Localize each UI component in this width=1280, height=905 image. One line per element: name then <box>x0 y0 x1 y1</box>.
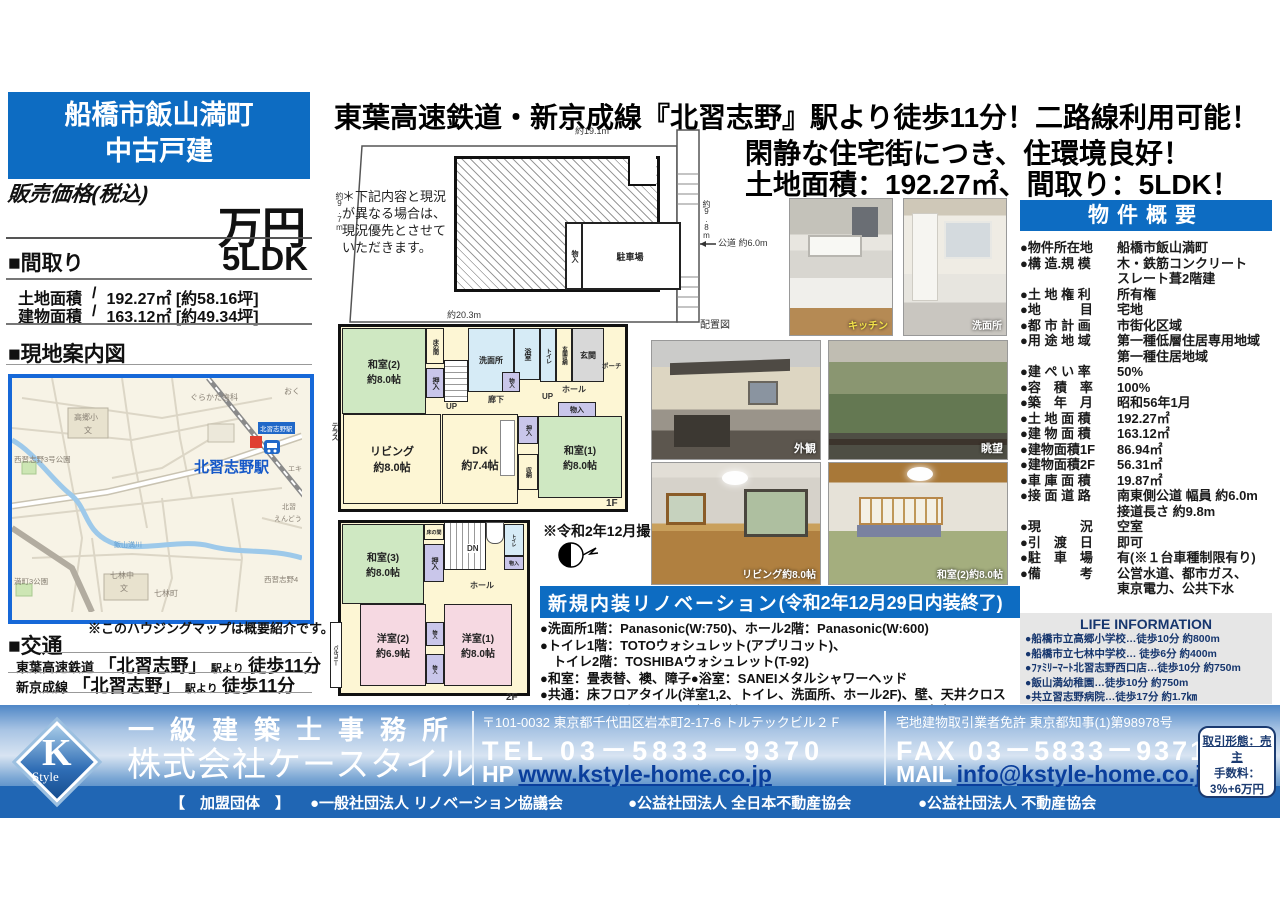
photo-exterior: 外観 <box>651 340 821 460</box>
closet-shuno: 収納 <box>518 454 538 490</box>
mail-row: MAIL info@kstyle-home.co.jp <box>896 761 1216 788</box>
room-washitsu1: 和室(1)約8.0帖 <box>538 416 622 498</box>
map-label: 西習志野4 <box>264 574 298 585</box>
kitchen-counter <box>500 420 515 476</box>
renovation-item: トイレ2階：TOSHIBAウォシュレット(T-92) <box>540 654 1018 671</box>
overview-row: ●容 積 率100% <box>1020 380 1274 396</box>
divider <box>6 364 312 365</box>
mirror-shape <box>944 221 992 259</box>
footer-band: K Style 一級建築士事務所 株式会社ケースタイル 【 加盟団体 】 ●一般… <box>0 705 1280 818</box>
logo-style-text: Style <box>32 769 59 785</box>
photo-view: 眺望 <box>828 340 1008 460</box>
closet-monoire: 物入 <box>502 372 520 392</box>
map-disclaimer: ※このハウジングマップは概要紹介です。 <box>88 618 334 637</box>
closet-monoire: 物入 <box>426 622 444 646</box>
overview-row: ●物件所在地船橋市飯山満町 <box>1020 240 1274 256</box>
walk-time: 徒歩11分 <box>222 676 295 696</box>
dim-top: 約19.1m <box>575 124 609 137</box>
porch-label: ポーチ <box>602 360 622 370</box>
room-washitsu2: 和室(2)約8.0帖 <box>342 328 426 414</box>
hall-2f-label: ホール <box>470 580 494 591</box>
overview-row: ●土 地 面 積192.27㎡ <box>1020 411 1274 427</box>
closet-monoire: 物入 <box>558 402 596 417</box>
renovation-item: ●洗面所1階：Panasonic(W:750)、ホール2階：Panasonic(… <box>540 621 1018 638</box>
member-org-label: 【 加盟団体 】 <box>170 792 290 813</box>
up-label: UP <box>542 392 553 401</box>
photo-label: リビング約8.0帖 <box>742 566 816 581</box>
life-information-title: LIFE INFORMATION <box>1020 616 1272 632</box>
divider <box>6 323 312 325</box>
hall-label: ホール <box>562 384 586 395</box>
map-label: 文 <box>84 425 92 436</box>
deal-type: 取引形態：売主 <box>1200 734 1274 766</box>
mail-link[interactable]: info@kstyle-home.co.jp <box>957 761 1216 787</box>
window-shape <box>748 381 778 405</box>
map-station-tag: 北習志野駅 <box>258 422 295 434</box>
fee-label: 手数料： <box>1200 766 1274 782</box>
property-title-box: 船橋市飯山満町 中古戸建 <box>8 92 310 179</box>
member-org: ●公益社団法人 全日本不動産協会 <box>628 792 851 813</box>
dn-label: DN <box>466 544 480 553</box>
photo-label: 洗面所 <box>972 317 1002 332</box>
overview-row: ●土 地 権 利所有権 <box>1020 287 1274 303</box>
divider <box>40 692 312 693</box>
map-label: 七林中 <box>110 570 134 581</box>
storage-strip: 物入 <box>565 222 583 290</box>
room-living: リビング約8.0帖 <box>343 414 441 504</box>
station-name: 「北習志野」 <box>72 676 180 696</box>
shoji-shape <box>859 497 943 525</box>
access-row: 新京成線 「北習志野」 駅より 徒歩11分 <box>16 672 310 698</box>
member-org: ●公益社団法人 不動産協会 <box>918 792 1096 813</box>
map-label: 高郷小 <box>74 412 98 423</box>
dim-right: 約9.8m <box>701 200 712 239</box>
overview-row: ●地 目宅地 <box>1020 302 1274 318</box>
floor-plan-2f: バルコニー 和室(3)約8.0帖 床の間 押入 DN トイレ 物入 ホール 洋室… <box>330 518 535 698</box>
photo-date-note: ※令和2年12月撮影 <box>543 521 664 541</box>
renovation-item: ●共通：床フロアタイル(洋室1,2、トイレ、洗面所、ホール2F)、壁、天井クロス <box>540 687 1018 704</box>
garage-shape <box>674 415 730 447</box>
fixture <box>486 522 504 544</box>
overview-row: ●車 庫 面 積19.87㎡ <box>1020 473 1274 489</box>
headline-line3: 土地面積：192.27㎡、間取り：5LDK！ <box>745 163 1240 203</box>
footer-divider <box>472 711 474 785</box>
deal-type-box: 取引形態：売主 手数料： 3％+6万円 <box>1198 726 1276 798</box>
building-notch <box>628 156 656 186</box>
room-washitsu3: 和室(3)約8.0帖 <box>342 524 424 604</box>
overview-row: ●建 物 面 積163.12㎡ <box>1020 426 1274 442</box>
compass-icon <box>556 540 602 570</box>
life-item: ●飯山満幼稚園…徒歩10分 約750m <box>1020 676 1272 691</box>
station-suffix: 駅より <box>185 683 218 695</box>
floor-1f-label: 1F <box>606 498 618 509</box>
photo-kitchen: キッチン <box>789 198 893 336</box>
map-label: おく <box>284 386 300 397</box>
madori-value: 5LDK <box>8 240 308 278</box>
closet-oshiire: 押入 <box>426 368 444 398</box>
road-label: 公道 約6.0m <box>718 236 768 249</box>
photo-label: キッチン <box>848 317 888 332</box>
renovation-title: 新規内装リノベーション <box>548 589 779 616</box>
photo-washroom: 洗面所 <box>903 198 1007 336</box>
map-label: 文 <box>120 583 128 594</box>
overview-row: ●用 途 地 域第一種低層住居専用地域 第一種住居地域 <box>1020 333 1274 364</box>
location-map: ぐらかた歯科 おく 高郷小 文 西習志野3号公園 北習志野駅 北習志野駅 エキ … <box>8 374 314 624</box>
map-canvas: ぐらかた歯科 おく 高郷小 文 西習志野3号公園 北習志野駅 北習志野駅 エキ … <box>12 378 302 612</box>
map-label: ぐらかた歯科 <box>190 392 238 403</box>
site-plan-disclaimer: ＊下記内容と現況が異なる場合は、現況優先とさせていただきます。 <box>342 188 454 256</box>
ceiling-light-shape <box>907 467 933 481</box>
closet-monoire: 物入 <box>426 654 444 684</box>
map-graphic <box>12 378 302 612</box>
overview-row: ●駐 車 場有(※１台車種制限有り) <box>1020 550 1274 566</box>
map-station-label: 北習志野駅 <box>194 456 269 477</box>
site-plan: 駐車場 物入 約19.1m 約20.3m 約9.7m 約9.8m 公道 約6.0… <box>332 122 772 332</box>
parking-area: 駐車場 <box>579 222 681 290</box>
map-label: えんどう <box>274 514 302 524</box>
life-item: ●共立習志野病院…徒歩17分 約1.7㎞ <box>1020 690 1272 705</box>
renovation-item: ●トイレ1階：TOTOウォシュレット(アプリコット)、 <box>540 638 1018 655</box>
room-tokonoma: 床の間 <box>426 328 444 364</box>
dim-bottom: 約20.3m <box>447 308 481 321</box>
overview-row: ●建物面積1F86.94㎡ <box>1020 442 1274 458</box>
overview-row: ●都 市 計 画市街化区域 <box>1020 318 1274 334</box>
property-type: 中古戸建 <box>8 133 310 169</box>
company-name: 株式会社ケースタイル <box>127 737 475 786</box>
map-label: 満町3公園 <box>14 576 48 587</box>
overview-row: ●築 年 月昭和56年1月 <box>1020 395 1274 411</box>
map-label: エキ <box>288 464 302 474</box>
room-genkan: 玄関 <box>572 328 604 382</box>
overview-row: ●備 考公営水道、都市ガス、 東京電力、公共下水 <box>1020 566 1274 597</box>
life-information-box: LIFE INFORMATION ●船橋市立高郷小学校…徒歩10分 約800m … <box>1020 613 1272 704</box>
overview-header: 物件概要 <box>1020 200 1272 231</box>
divider <box>6 278 312 280</box>
cabinet-shape <box>912 213 938 301</box>
photo-washitsu: 和室(2)約8.0帖 <box>828 462 1008 585</box>
corridor-label: 廊下 <box>488 394 504 405</box>
room-tokonoma: 床の間 <box>424 524 444 540</box>
photo-label: 眺望 <box>981 440 1003 456</box>
member-org: ●一般社団法人 リノベーション協議会 <box>310 792 563 813</box>
hp-link[interactable]: www.kstyle-home.co.jp <box>518 761 771 787</box>
fusuma-shape <box>857 525 941 537</box>
site-plan-caption: 配置図 <box>700 316 730 331</box>
photo-living: リビング約8.0帖 <box>651 462 821 585</box>
map-label: 西習志野3号公園 <box>14 454 71 465</box>
life-item: ●船橋市立七林中学校… 徒歩6分 約400m <box>1020 647 1272 662</box>
kitchen-window-shape <box>808 235 862 257</box>
room-toilet-2f: トイレ <box>504 524 524 556</box>
balcony: バルコニー <box>330 622 342 688</box>
up-label: UP <box>446 402 457 411</box>
kstyle-logo: K Style <box>16 723 92 799</box>
map-river-label: 飯山満川 <box>114 540 142 550</box>
map-label: 北習 <box>282 502 296 512</box>
overview-row: ●建 ぺ い 率50% <box>1020 364 1274 380</box>
roof-shape <box>670 359 790 375</box>
genkan-storage: 玄関収納 <box>556 328 572 382</box>
floor-2f-label: 2F <box>506 692 518 703</box>
overview-row: ●引 渡 日即可 <box>1020 535 1274 551</box>
renovation-header: 新規内装リノベーション (令和2年12月29日内装終了) <box>540 586 1020 618</box>
life-item: ●ﾌｧﾐﾘｰﾏｰﾄ北習志野西口店…徒歩10分 約750m <box>1020 661 1272 676</box>
overview-table: ●物件所在地船橋市飯山満町 ●構 造.規 模木・鉄筋コンクリート スレート葺2階… <box>1020 240 1274 597</box>
map-label: 七林町 <box>154 588 178 599</box>
life-item: ●船橋市立高郷小学校…徒歩10分 約800m <box>1020 632 1272 647</box>
overview-row: ●現 況空室 <box>1020 519 1274 535</box>
renovation-item: ●和室：畳表替、襖、障子●浴室：SANEIメタルシャワーヘッド <box>540 671 1018 688</box>
range-hood-shape <box>852 207 878 237</box>
divider <box>6 237 312 239</box>
terrace-label: テラス <box>329 422 339 440</box>
overview-row: ●接 面 道 路南東側公道 幅員 約6.0m 接道長さ 約9.8m <box>1020 488 1274 519</box>
hp-row: HP www.kstyle-home.co.jp <box>482 761 772 788</box>
ceiling-light-shape <box>722 471 748 485</box>
room-yoshitsu2: 洋室(2)約6.9帖 <box>360 604 426 686</box>
room-toilet: トイレ <box>540 328 556 382</box>
overview-row: ●建物面積2F56.31㎡ <box>1020 457 1274 473</box>
closet-monoire: 物入 <box>504 556 524 570</box>
stairs-down <box>444 522 486 570</box>
closet-oshiire: 押入 <box>424 544 444 582</box>
stairs-up <box>444 360 468 402</box>
floor-plan-1f: 和室(2)約8.0帖 床の間 押入 UP 洗面所 浴室 トイレ 玄関収納 玄関 … <box>338 322 630 512</box>
station-marker <box>250 436 262 448</box>
property-location: 船橋市飯山満町 <box>8 97 310 133</box>
closet-oshiire: 押入 <box>518 416 538 444</box>
mail-label: MAIL <box>896 761 952 787</box>
window-shape <box>744 489 808 537</box>
photo-label: 外観 <box>794 440 816 456</box>
room-yoshitsu1: 洋室(1)約8.0帖 <box>444 604 512 686</box>
fee-value: 3％+6万円 <box>1200 782 1274 798</box>
renovation-title-date: (令和2年12月29日内装終了) <box>779 589 1003 615</box>
window-shape <box>666 493 706 525</box>
photo-label: 和室(2)約8.0帖 <box>937 566 1003 581</box>
hp-label: HP <box>482 761 514 787</box>
overview-row: ●構 造.規 模木・鉄筋コンクリート スレート葺2階建 <box>1020 256 1274 287</box>
footer-divider <box>884 711 886 785</box>
